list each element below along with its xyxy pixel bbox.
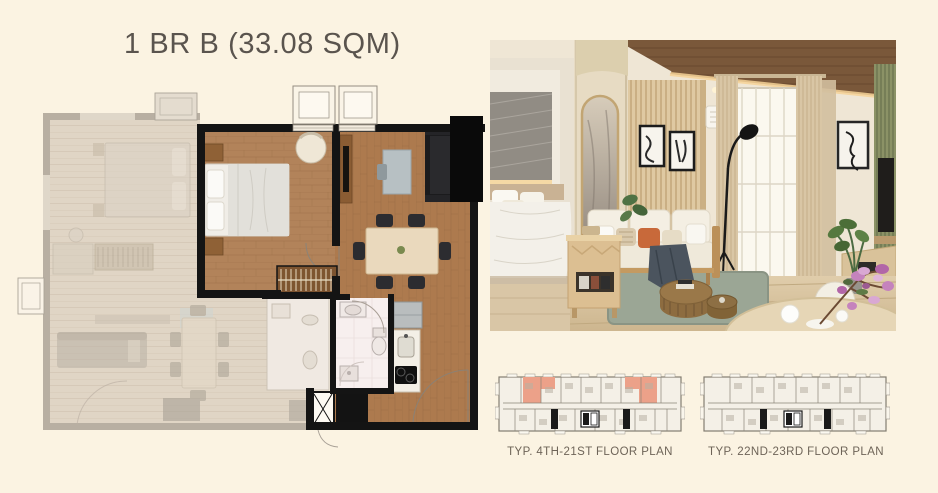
windows-and-ledges (293, 86, 377, 131)
nightstand (566, 226, 622, 318)
wardrobe (277, 266, 337, 294)
floor-plate-1-caption: TYP. 4TH-21ST FLOOR PLAN (490, 446, 690, 458)
window-with-curtains (714, 74, 836, 288)
unit-title: 1 BR B (33.08 SQM) (124, 28, 401, 61)
bathroom (336, 298, 390, 390)
floor-plate-2-caption: TYP. 22ND-23RD FLOOR PLAN (696, 446, 896, 458)
floor-plate-22nd-23rd (700, 371, 890, 437)
interior-photo (490, 40, 896, 331)
bedroom-doorway (490, 58, 578, 331)
marketing-sheet: 1 BR B (33.08 SQM) (0, 0, 938, 493)
floor-plate-4th-21st (495, 371, 685, 437)
unit-floor-plan (10, 80, 490, 485)
